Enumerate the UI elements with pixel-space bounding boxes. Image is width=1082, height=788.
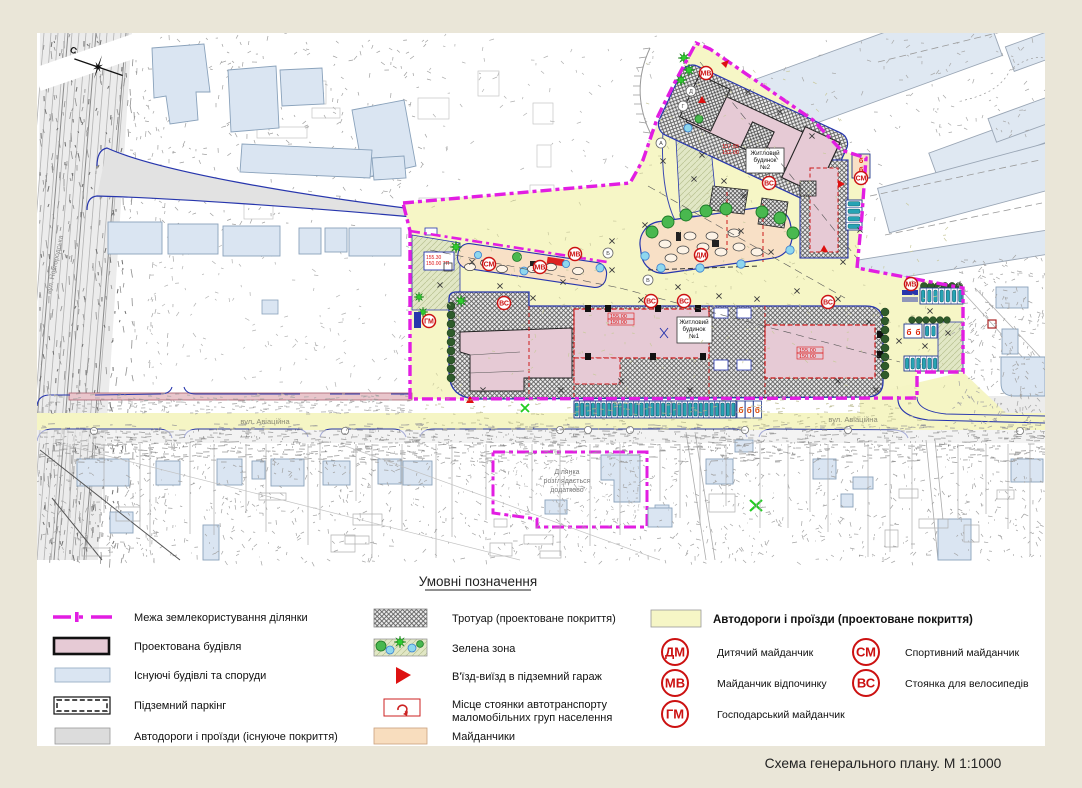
svg-text:ВС: ВС xyxy=(857,676,876,691)
svg-text:ВС: ВС xyxy=(646,299,656,306)
svg-text:Господарський майданчик: Господарський майданчик xyxy=(717,709,845,721)
svg-text:Межа землекористування ділянки: Межа землекористування ділянки xyxy=(134,612,308,624)
svg-text:ДМ: ДМ xyxy=(665,645,685,660)
svg-text:б: б xyxy=(916,328,921,337)
svg-text:ВС: ВС xyxy=(764,181,774,188)
svg-text:ГМ: ГМ xyxy=(666,707,684,722)
svg-text:Житловий: Житловий xyxy=(679,319,709,326)
svg-text:Ділянка: Ділянка xyxy=(554,468,579,476)
svg-text:152.00: 152.00 xyxy=(722,150,739,156)
svg-text:МВ: МВ xyxy=(570,252,581,259)
svg-text:б: б xyxy=(907,328,912,337)
svg-text:Д: Д xyxy=(689,89,693,95)
svg-text:МВ: МВ xyxy=(701,71,712,78)
svg-text:б: б xyxy=(755,406,760,415)
svg-text:додатково: додатково xyxy=(550,487,584,494)
svg-text:В'їзд-виїзд в підземний гараж: В'їзд-виїзд в підземний гараж xyxy=(452,671,603,683)
svg-text:Підземний паркінг: Підземний паркінг xyxy=(134,700,226,712)
svg-text:ДМ: ДМ xyxy=(696,253,707,260)
svg-text:МВ: МВ xyxy=(665,676,685,691)
svg-text:150.00: 150.00 xyxy=(610,320,627,326)
svg-text:СМ: СМ xyxy=(484,262,495,269)
svg-text:Умовні позначення: Умовні позначення xyxy=(419,574,537,589)
svg-text:Проектована будівля: Проектована будівля xyxy=(134,641,241,653)
svg-text:б: б xyxy=(747,406,752,415)
svg-text:ВС: ВС xyxy=(679,299,689,306)
svg-text:№1: №1 xyxy=(689,333,700,340)
svg-text:Майданчик відпочинку: Майданчик відпочинку xyxy=(717,678,827,690)
svg-text:СМ: СМ xyxy=(856,176,867,183)
svg-text:Житловий: Житловий xyxy=(750,150,780,157)
svg-text:Майданчики: Майданчики xyxy=(452,731,515,743)
svg-text:Б: Б xyxy=(606,251,610,257)
svg-text:Автодороги і проїзди (існуюче: Автодороги і проїзди (існуюче покриття) xyxy=(134,731,338,743)
svg-text:Зелена зона: Зелена зона xyxy=(452,643,516,655)
svg-text:СМ: СМ xyxy=(856,645,876,660)
svg-text:вул. Авіаційна: вул. Авіаційна xyxy=(240,417,290,426)
svg-text:ВС: ВС xyxy=(823,300,833,307)
svg-text:б: б xyxy=(859,157,864,165)
svg-text:Стоянка для велосипедів: Стоянка для велосипедів xyxy=(905,678,1029,690)
svg-text:б: б xyxy=(739,406,744,415)
svg-text:Г: Г xyxy=(682,104,685,110)
svg-text:ГМ: ГМ xyxy=(424,319,434,326)
svg-text:Автодороги і проїзди (проектов: Автодороги і проїзди (проектоване покрит… xyxy=(713,614,973,626)
svg-text:А: А xyxy=(659,141,663,147)
svg-text:Спортивний майданчик: Спортивний майданчик xyxy=(905,647,1019,659)
svg-text:вул. Авіаційна: вул. Авіаційна xyxy=(828,415,878,424)
svg-text:маломобільних груп населення: маломобільних груп населення xyxy=(452,712,612,724)
svg-text:розглядається: розглядається xyxy=(544,478,591,485)
svg-text:ВС: ВС xyxy=(499,301,509,308)
svg-text:будинок: будинок xyxy=(754,157,777,164)
svg-text:Схема генерального плану. М 1: Схема генерального плану. М 1:1000 xyxy=(765,756,1002,771)
svg-text:Тротуар (проектоване покриття): Тротуар (проектоване покриття) xyxy=(452,613,616,625)
svg-text:МВ: МВ xyxy=(535,265,546,272)
svg-text:будинок: будинок xyxy=(683,326,706,333)
svg-text:№2: №2 xyxy=(760,164,771,171)
svg-text:150.00 ТП: 150.00 ТП xyxy=(426,261,450,267)
svg-text:150.00: 150.00 xyxy=(799,354,816,360)
svg-text:МВ: МВ xyxy=(906,282,917,289)
svg-text:Місце стоянки автотранспорту: Місце стоянки автотранспорту xyxy=(452,699,608,711)
svg-text:Дитячий майданчик: Дитячий майданчик xyxy=(717,647,814,659)
svg-text:Існуючі будівлі та споруди: Існуючі будівлі та споруди xyxy=(134,670,266,682)
svg-text:В: В xyxy=(646,278,650,284)
